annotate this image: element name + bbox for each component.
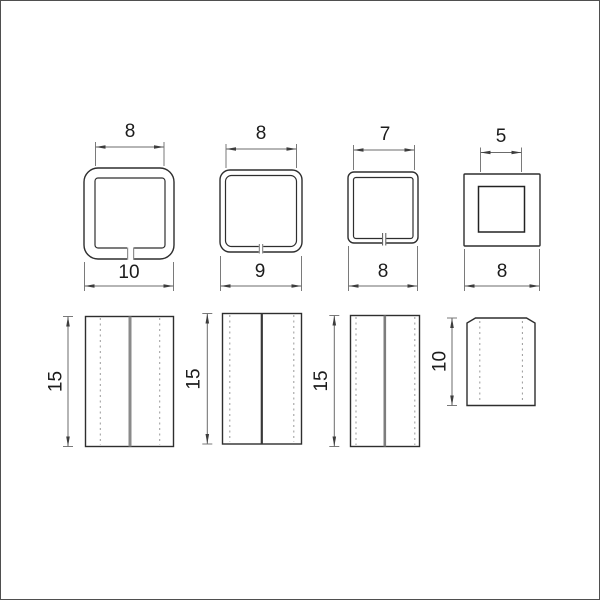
profile-1-inner-width-label: 8 <box>125 121 136 142</box>
profile-4-height-label: 10 <box>430 351 451 372</box>
profile-1-outer-width-label: 10 <box>118 262 139 283</box>
profile-2-inner-width-label: 8 <box>256 123 267 144</box>
profile-3-inner-width-label: 7 <box>380 124 391 145</box>
profile-2-height-label: 15 <box>184 368 205 389</box>
profile-1-height-label: 15 <box>46 371 67 392</box>
profile-4-outer-width-label: 8 <box>497 261 508 282</box>
profile-2-outer-width-label: 9 <box>255 261 266 282</box>
profile-4-inner-width-label: 5 <box>496 126 507 147</box>
profile-3-height-label: 15 <box>311 370 332 391</box>
page-frame <box>1 1 600 600</box>
drawing-canvas: 8 10 15 <box>0 0 600 600</box>
technical-drawing: 8 10 15 <box>0 0 600 600</box>
profile-3-outer-width-label: 8 <box>378 261 389 282</box>
